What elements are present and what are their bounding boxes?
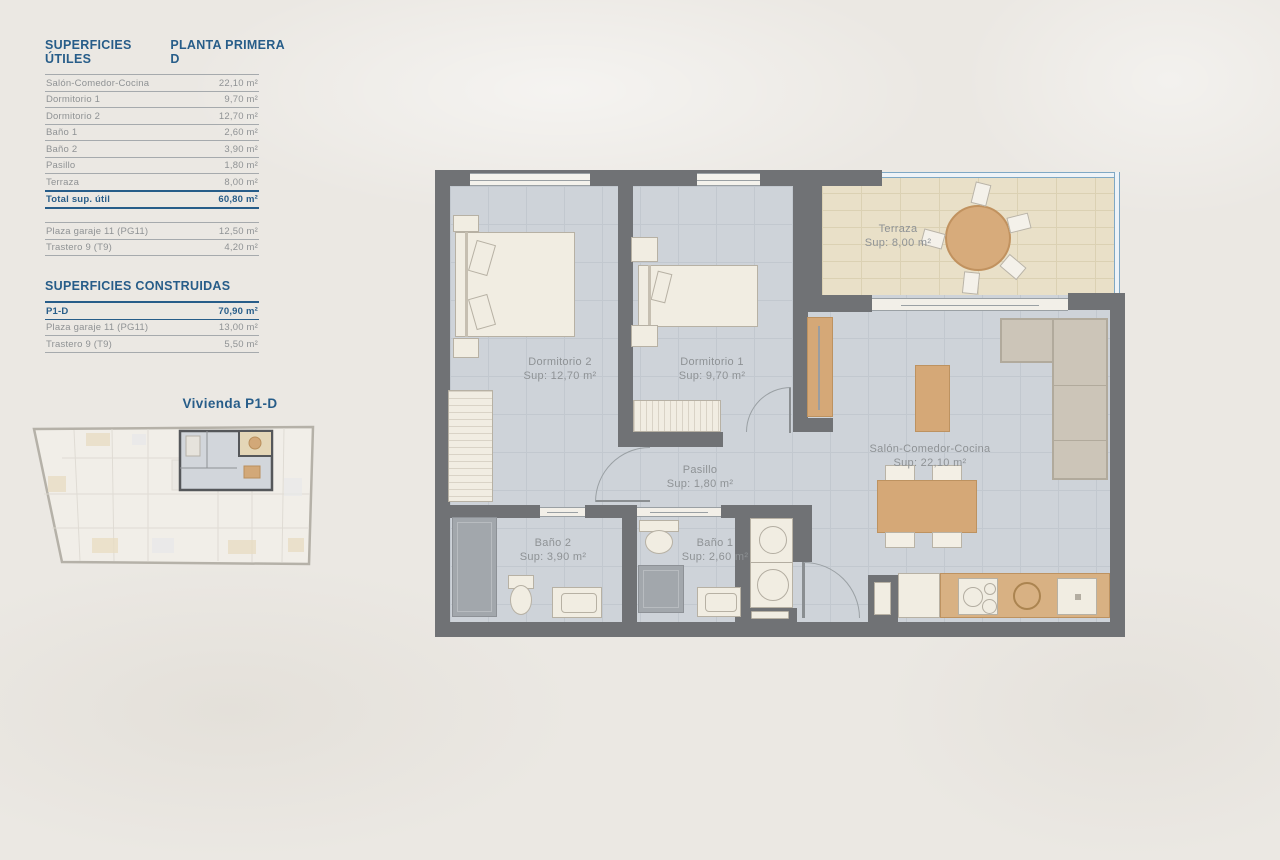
row-label: Salón-Comedor-Cocina (46, 78, 149, 89)
bed-headboard (465, 232, 468, 337)
row-value: 3,90 m² (224, 144, 258, 155)
kitchen-cabinet (898, 573, 940, 618)
room-label-pasillo: Pasillo Sup: 1,80 m² (620, 463, 780, 492)
row-value: 12,70 m² (219, 111, 258, 122)
row-value: 60,80 m² (218, 194, 258, 205)
room-label-bano1: Baño 1 Sup: 2,60 m² (635, 536, 795, 565)
sofa-cushion-line (1054, 385, 1106, 386)
terrace-glass-balustrade (1114, 172, 1120, 295)
room-label-terraza: Terraza Sup: 8,00 m² (818, 222, 978, 251)
unit-title: Vivienda P1-D (120, 396, 340, 411)
wall-cabinet-end (793, 418, 833, 432)
table-row: Salón-Comedor-Cocina22,10 m² (45, 75, 259, 92)
room-label-dormitorio1: Dormitorio 1 Sup: 9,70 m² (632, 355, 792, 384)
row-label: P1-D (46, 306, 68, 317)
wall-terrace-top-stub (822, 170, 882, 186)
useful-surfaces-header: SUPERFICIES ÚTILES PLANTA PRIMERA D (45, 38, 287, 66)
shower-tray (638, 565, 684, 613)
room-name: Dormitorio 2 (480, 355, 640, 369)
sofa-cushion-line (1054, 440, 1106, 441)
table-row: Dormitorio 19,70 m² (45, 92, 259, 109)
bath2-sink (552, 587, 602, 618)
row-value: 2,60 m² (224, 127, 258, 138)
entry-column-niche (874, 582, 891, 615)
annex-table: Plaza garaje 11 (PG11)12,50 m² Trastero … (45, 222, 259, 256)
table-row: Pasillo1,80 m² (45, 158, 259, 175)
shower-inner (643, 570, 679, 608)
room-area: Sup: 3,90 m² (473, 550, 633, 564)
table-row: Plaza garaje 11 (PG11)12,50 m² (45, 223, 259, 240)
row-label: Trastero 9 (T9) (46, 242, 112, 253)
kitchen-island (915, 365, 950, 432)
useful-surfaces-title: SUPERFICIES ÚTILES (45, 38, 170, 66)
table-row: Trastero 9 (T9)4,20 m² (45, 240, 259, 257)
bath2-sliding-door (540, 507, 585, 517)
row-label: Pasillo (46, 160, 75, 171)
room-name: Baño 2 (473, 536, 633, 550)
wall-dorm-divider (618, 186, 633, 447)
burner (982, 599, 997, 614)
nightstand (631, 237, 658, 262)
room-name: Dormitorio 1 (632, 355, 792, 369)
nightstand (453, 338, 479, 358)
room-area: Sup: 22,10 m² (850, 456, 1010, 470)
wall-dorm1-bottom (618, 432, 723, 447)
double-bed (455, 232, 575, 337)
row-value: 13,00 m² (219, 322, 258, 333)
room-area: Sup: 1,80 m² (620, 477, 780, 491)
bath1-sink (697, 587, 741, 617)
row-value: 22,10 m² (219, 78, 258, 89)
dryer-drum (757, 569, 789, 601)
dining-chair (885, 532, 915, 548)
room-area: Sup: 8,00 m² (818, 236, 978, 250)
wall-right (1110, 293, 1125, 637)
table-row: Terraza8,00 m² (45, 174, 259, 191)
room-area: Sup: 2,60 m² (635, 550, 795, 564)
row-label: Baño 1 (46, 127, 77, 138)
row-value: 4,20 m² (224, 242, 258, 253)
burner (963, 587, 983, 607)
table-row: Plaza garaje 11 (PG11)13,00 m² (45, 320, 259, 337)
row-label: Dormitorio 1 (46, 94, 100, 105)
basin (705, 593, 737, 612)
terrace-sliding-door (872, 298, 1068, 311)
row-value: 5,50 m² (224, 339, 258, 350)
dining-table (877, 480, 977, 533)
wall-entry-jamb (793, 505, 812, 562)
entry-threshold (751, 611, 789, 619)
window-dormitorio1 (697, 173, 760, 186)
room-name: Salón-Comedor-Cocina (850, 442, 1010, 456)
row-label: Plaza garaje 11 (PG11) (46, 226, 148, 237)
row-value: 70,90 m² (218, 306, 258, 317)
row-label: Terraza (46, 177, 79, 188)
room-label-salon: Salón-Comedor-Cocina Sup: 22,10 m² (850, 442, 1010, 471)
hall-cabinet (807, 317, 833, 417)
room-label-bano2: Baño 2 Sup: 3,90 m² (473, 536, 633, 565)
nightstand (631, 325, 658, 347)
table-row: Dormitorio 212,70 m² (45, 108, 259, 125)
room-name: Pasillo (620, 463, 780, 477)
table-row: Baño 12,60 m² (45, 125, 259, 142)
row-label: Plaza garaje 11 (PG11) (46, 322, 148, 333)
row-value: 8,00 m² (224, 177, 258, 188)
built-surfaces-title: SUPERFICIES CONSTRUIDAS (45, 279, 295, 293)
room-area: Sup: 12,70 m² (480, 369, 640, 383)
main-floorplan: Dormitorio 2 Sup: 12,70 m² Dormitorio 1 … (435, 170, 1125, 637)
nightstand (453, 215, 479, 232)
kitchen-appliance (1057, 578, 1097, 615)
wall-salon-top-left (805, 295, 872, 312)
dorm2-wardrobe (448, 390, 493, 502)
total-row: Total sup. útil60,80 m² (45, 190, 259, 210)
cabinet-door-line (818, 326, 820, 410)
wall-bottom (435, 622, 1125, 637)
dorm1-wardrobe (633, 400, 721, 432)
appliance-dot (1075, 594, 1081, 600)
building-overview-plan (32, 418, 347, 588)
floor-name-title: PLANTA PRIMERA D (170, 38, 287, 66)
built-surfaces-table: P1-D70,90 m² Plaza garaje 11 (PG11)13,00… (45, 301, 259, 353)
useful-surfaces-table: Salón-Comedor-Cocina22,10 m² Dormitorio … (45, 74, 259, 209)
row-label: Trastero 9 (T9) (46, 339, 112, 350)
terrace-chair (962, 271, 980, 295)
basin (561, 593, 597, 613)
table-row: Trastero 9 (T9)5,50 m² (45, 336, 259, 353)
room-name: Terraza (818, 222, 978, 236)
surface-areas-panel: SUPERFICIES ÚTILES PLANTA PRIMERA D Saló… (45, 38, 295, 353)
room-area: Sup: 9,70 m² (632, 369, 792, 383)
cooktop (958, 578, 998, 615)
row-label: Dormitorio 2 (46, 111, 100, 122)
row-value: 9,70 m² (224, 94, 258, 105)
row-value: 1,80 m² (224, 160, 258, 171)
row-label: Baño 2 (46, 144, 77, 155)
sofa-right-section (1052, 318, 1108, 480)
wall-dorm1-right (793, 186, 808, 432)
floorplan-page: { "tables": { "utiles": { "title": "SUPE… (0, 0, 1280, 800)
room-name: Baño 1 (635, 536, 795, 550)
toilet-bowl (510, 585, 532, 615)
table-row: Baño 23,90 m² (45, 141, 259, 158)
burner (984, 583, 996, 595)
window-dormitorio2 (470, 173, 590, 186)
dining-chair (932, 532, 962, 548)
kitchen-sink (1013, 582, 1041, 610)
bath1-sliding-door (637, 507, 721, 517)
table-row-highlight: P1-D70,90 m² (45, 303, 259, 320)
room-label-dormitorio2: Dormitorio 2 Sup: 12,70 m² (480, 355, 640, 384)
row-label: Total sup. útil (46, 194, 110, 205)
row-value: 12,50 m² (219, 226, 258, 237)
shower-tray (452, 517, 497, 617)
